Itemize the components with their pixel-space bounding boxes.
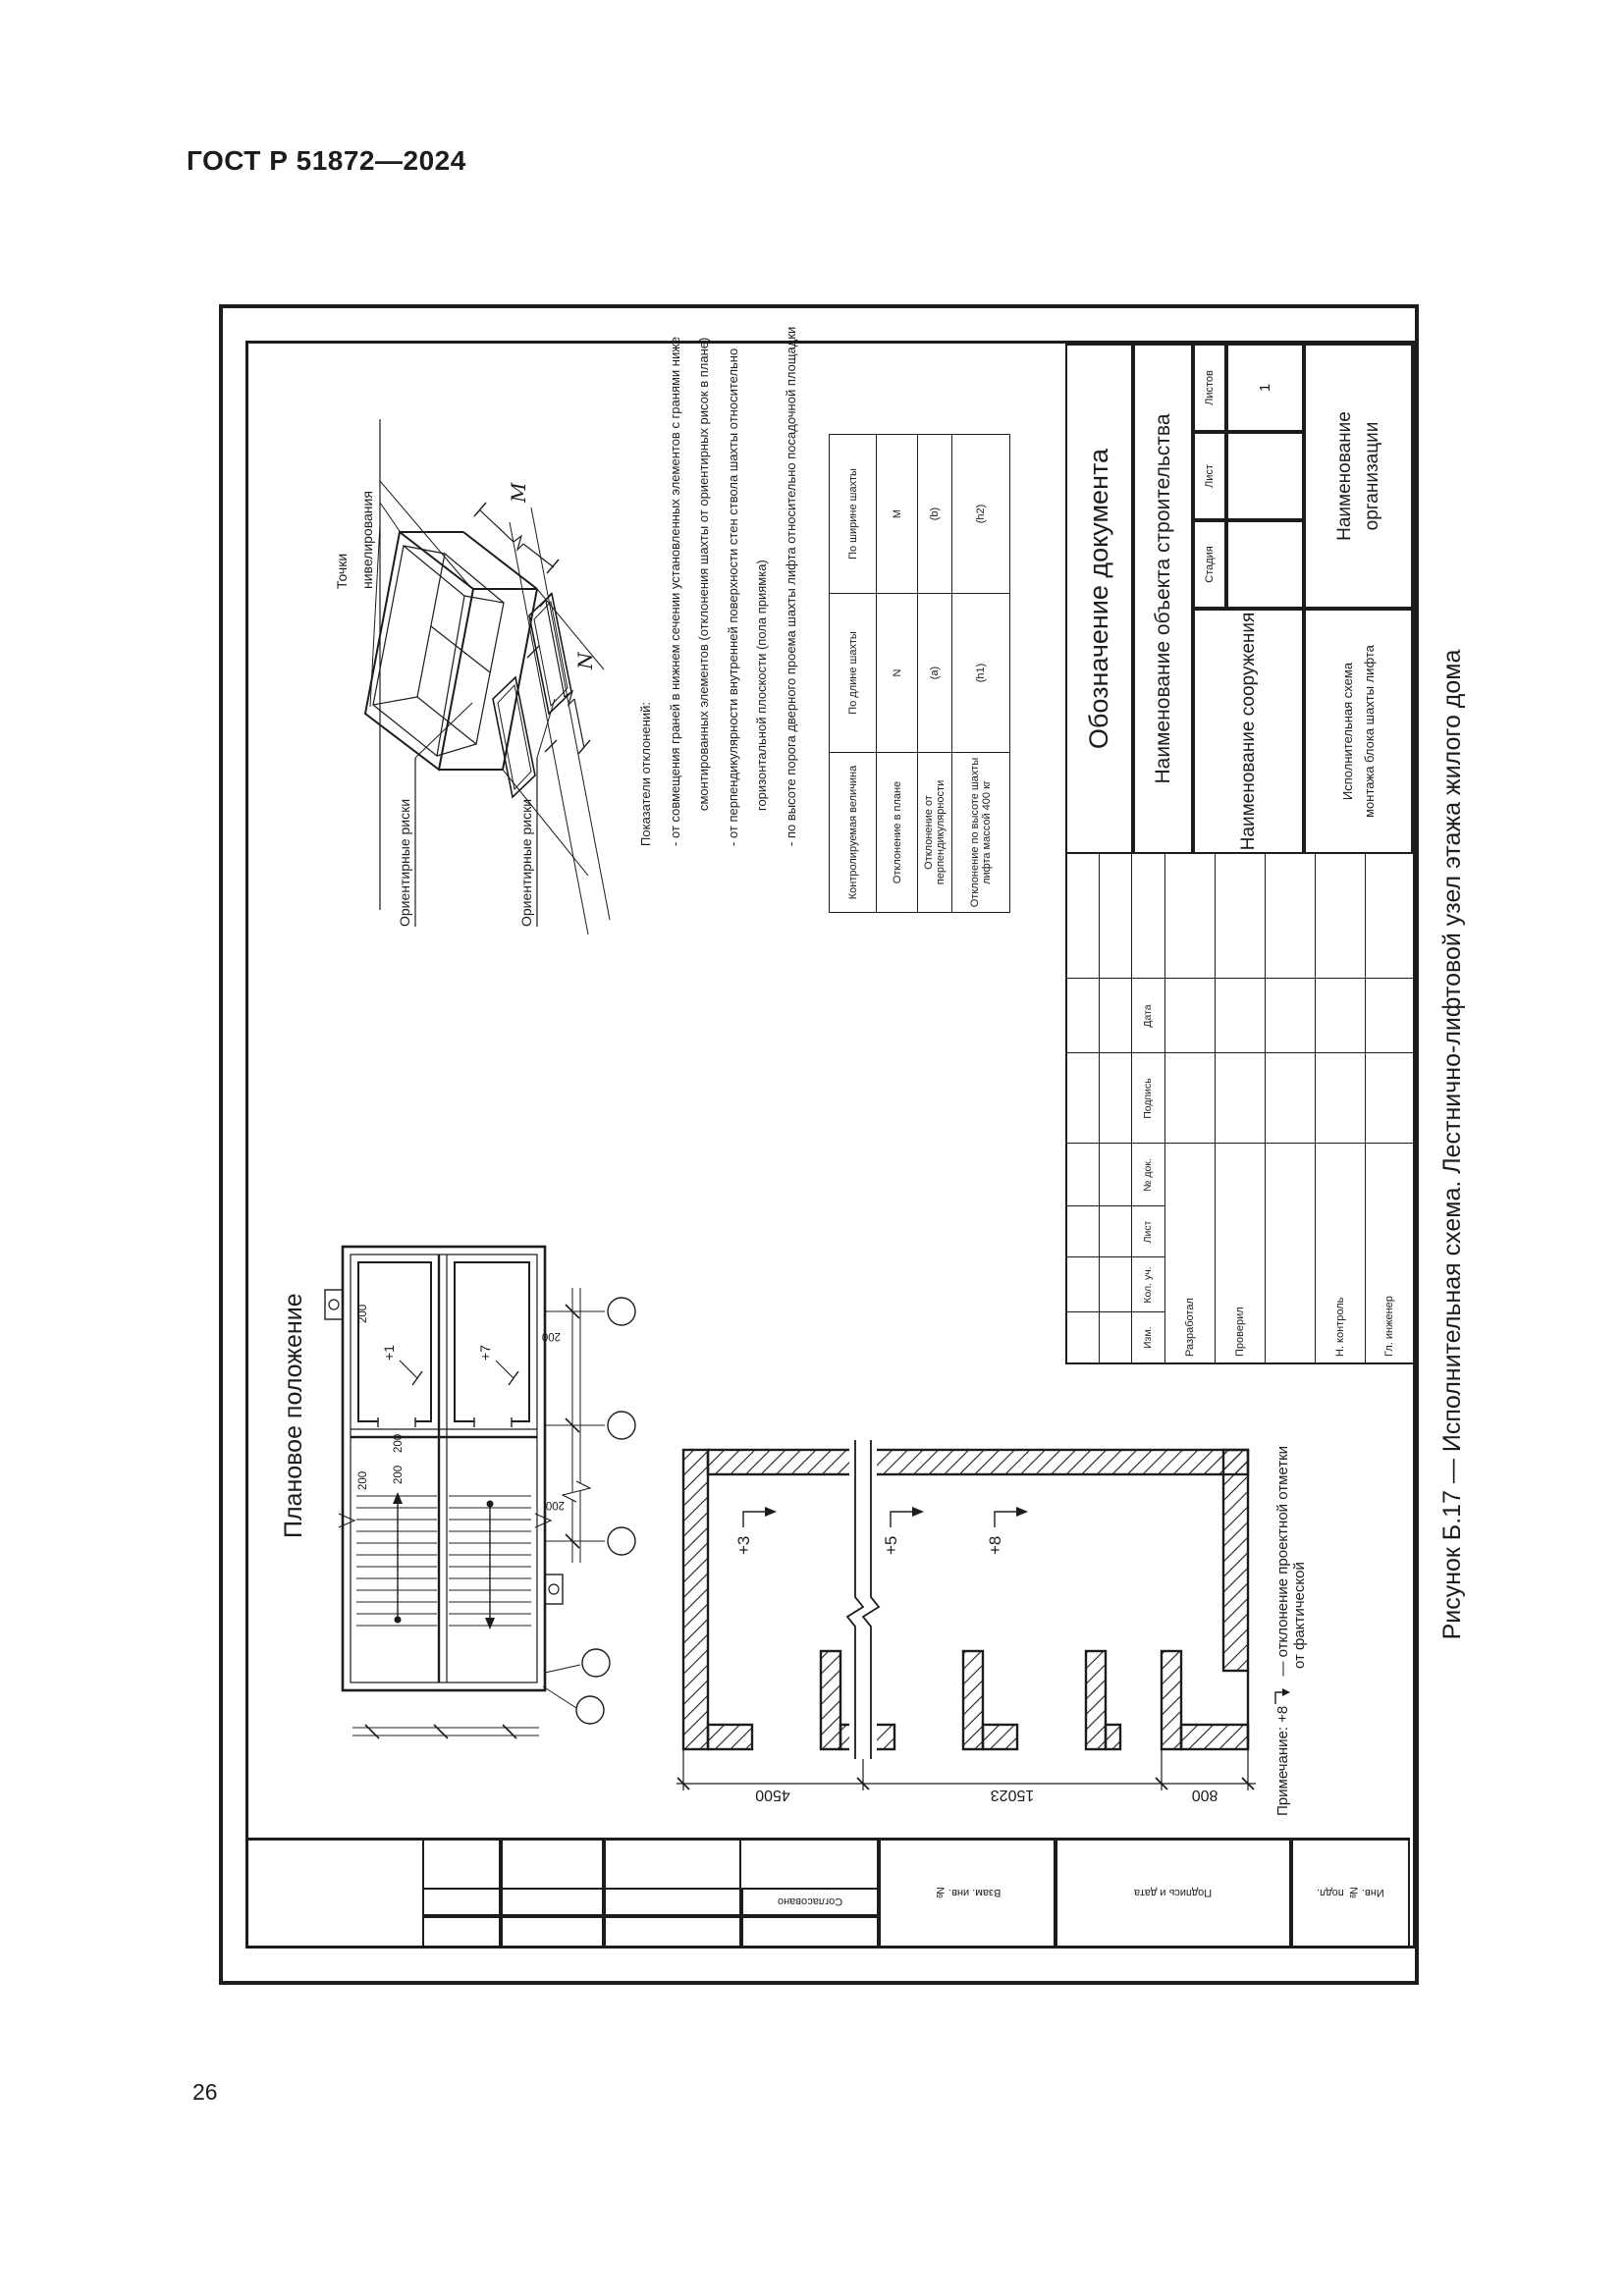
sheets-value: 1 bbox=[1257, 384, 1273, 392]
construction-object-cell: Наименование объекта строительства bbox=[1133, 344, 1193, 854]
section-dim-mid: 15023 bbox=[991, 1787, 1035, 1803]
blank-cell bbox=[1365, 853, 1414, 979]
shaft-bottom-wall bbox=[1223, 1450, 1248, 1671]
elevation-symbol-icon bbox=[1272, 1681, 1291, 1706]
leader-line bbox=[380, 481, 470, 587]
figure-caption: Рисунок Б.17 — Исполнительная схема. Лес… bbox=[1438, 556, 1467, 1734]
dim-tick bbox=[578, 740, 590, 754]
shaft2-deviation: +7 bbox=[477, 1345, 493, 1361]
stage-value-cell bbox=[1226, 520, 1304, 609]
offset-dim: 200 bbox=[542, 1330, 561, 1342]
col-koluch: Кол. уч. bbox=[1131, 1257, 1164, 1312]
dim-break-icon bbox=[563, 1481, 590, 1502]
offset-dim: 200 bbox=[546, 1499, 565, 1511]
axis-bubble bbox=[608, 1527, 635, 1555]
dev-tick bbox=[509, 1371, 518, 1385]
dim-letter-m: M bbox=[507, 482, 530, 504]
blank-cell bbox=[1066, 1257, 1099, 1312]
replace-inv-label: Взам. инв. № bbox=[934, 1888, 1001, 1899]
anchor-circle-icon bbox=[329, 1300, 339, 1309]
stage-header: Стадия bbox=[1193, 520, 1226, 609]
partition-edge bbox=[431, 626, 490, 672]
spec-row-label: Отклонение от перпендикулярности bbox=[918, 753, 952, 913]
scheme-name-cell: Исполнительная схема монтажа блока шахты… bbox=[1304, 609, 1413, 854]
document-page: ГОСТ Р 51872—2024 26 Согласовано Взам. и… bbox=[0, 0, 1624, 2296]
deviation-line: горизонтальной плоскости (пола приямка) bbox=[747, 327, 777, 846]
door-sill bbox=[963, 1651, 983, 1749]
offset-dim: 200 bbox=[357, 1471, 369, 1490]
spec-value: (h2) bbox=[952, 435, 1010, 594]
door-sill bbox=[821, 1651, 840, 1749]
organization-cell: Наименование организации bbox=[1304, 344, 1413, 609]
organization-line2: организации bbox=[1359, 422, 1386, 531]
plan-title: Плановое положение bbox=[280, 1293, 308, 1538]
signature-cell bbox=[1265, 1053, 1315, 1144]
blank-cell bbox=[1215, 853, 1265, 979]
lift-shaft-2 bbox=[455, 1262, 529, 1421]
signature-cell bbox=[1315, 1053, 1365, 1144]
doc-designation: Обозначение документа bbox=[1084, 449, 1114, 749]
stair-treads-upper bbox=[356, 1496, 437, 1626]
signature-cell bbox=[1215, 1053, 1265, 1144]
organization-line1: Наименование bbox=[1331, 411, 1359, 541]
staff-role: Гл. инженер bbox=[1365, 1144, 1414, 1363]
sheet-label: Лист bbox=[1204, 464, 1216, 488]
orientation-mark-icon bbox=[545, 740, 557, 752]
leader-line bbox=[380, 503, 402, 534]
leveling-points-label-2: нивелирования bbox=[359, 491, 375, 589]
sheet-header: Лист bbox=[1193, 432, 1226, 520]
dim-line-m bbox=[480, 510, 514, 542]
dim-tick bbox=[503, 1725, 516, 1738]
title-block-grid: Изм. Кол. уч. Лист № док. Подпись Дата Р… bbox=[1065, 852, 1415, 1364]
shaft-left-wall bbox=[1181, 1725, 1248, 1749]
axis-bubble bbox=[608, 1298, 635, 1325]
scheme-name-line2: монтажа блока шахты лифта bbox=[1359, 645, 1380, 818]
axis-leader bbox=[543, 1686, 576, 1708]
stage-label: Стадия bbox=[1204, 546, 1216, 583]
elev-arrowhead-icon bbox=[1016, 1507, 1028, 1517]
blank-cell bbox=[1066, 1053, 1099, 1144]
orientation-marks-label-1: Ориентирные риски bbox=[397, 799, 412, 927]
shaft-door-opening bbox=[378, 1417, 415, 1427]
col-podpis: Подпись bbox=[1131, 1053, 1164, 1144]
blank-cell bbox=[1164, 853, 1215, 979]
plan-inner-wall bbox=[351, 1255, 537, 1682]
date-cell bbox=[1365, 979, 1414, 1053]
shaft-left-wall bbox=[708, 1725, 752, 1749]
anchor-circle-icon bbox=[549, 1584, 559, 1594]
staff-role bbox=[1265, 1144, 1315, 1363]
spec-table: Контролируемая величина По длине шахты П… bbox=[829, 434, 1010, 913]
axonometric-view: Точки нивелирования Ориентирные риски Ор… bbox=[262, 404, 645, 993]
elev-arrowhead-icon bbox=[765, 1507, 777, 1517]
spec-row-label-line2: лифта массой 400 кг bbox=[981, 756, 993, 909]
note-line-1: Примечание: +8 — отклонение проектной от… bbox=[1272, 1446, 1291, 1816]
ground-slab-1 bbox=[493, 677, 535, 797]
ground-slab-2-inner bbox=[534, 602, 568, 706]
approval-grid-col bbox=[422, 1916, 879, 1949]
inventory-cell: Инв. № подл. bbox=[1291, 1838, 1410, 1949]
dim-tick bbox=[365, 1725, 379, 1738]
anchor-box bbox=[545, 1575, 563, 1604]
spec-row-label-line1: Отклонение по высоте шахты bbox=[969, 756, 981, 909]
dev-leader bbox=[496, 1361, 514, 1378]
door-sill bbox=[1086, 1651, 1106, 1749]
sheets-header: Листов bbox=[1193, 344, 1226, 432]
anchor-box bbox=[325, 1290, 343, 1319]
inventory-label: Инв. № подл. bbox=[1317, 1888, 1384, 1899]
facility-name: Наименование сооружения bbox=[1238, 613, 1260, 851]
elevation-mark-1: +3 bbox=[734, 1536, 753, 1555]
deviation-notes: Показатели отклонений: - от совмещения г… bbox=[631, 327, 805, 846]
shaft1-deviation: +1 bbox=[381, 1345, 397, 1361]
door-sill bbox=[1162, 1651, 1181, 1749]
standard-designation: ГОСТ Р 51872—2024 bbox=[187, 145, 466, 177]
deviation-title: Показатели отклонений: bbox=[631, 327, 661, 846]
deviation-line: - по высоте порога дверного проема шахты… bbox=[777, 327, 806, 846]
spec-row-label: Отклонение по высоте шахты лифта массой … bbox=[952, 753, 1010, 913]
break-mark-icon bbox=[339, 1514, 354, 1527]
elev-arrowhead-icon bbox=[912, 1507, 924, 1517]
blank-cell bbox=[1099, 1312, 1131, 1363]
col-list: Лист bbox=[1131, 1206, 1164, 1257]
staff-role: Н. контроль bbox=[1315, 1144, 1365, 1363]
col-izm: Изм. bbox=[1131, 1312, 1164, 1363]
spec-col-length: По длине шахты bbox=[830, 594, 877, 753]
dim-tick bbox=[547, 560, 559, 573]
leader-line bbox=[415, 703, 472, 758]
dim-letter-n: N bbox=[573, 651, 597, 670]
date-cell bbox=[1215, 979, 1265, 1053]
orientation-marks-label-2: Ориентирные риски bbox=[518, 799, 534, 927]
construction-object: Наименование объекта строительства bbox=[1152, 413, 1175, 783]
dev-leader bbox=[400, 1361, 417, 1378]
elevation-mark-3: +8 bbox=[986, 1536, 1004, 1555]
dev-tick bbox=[412, 1371, 422, 1385]
section-dim-top: 4500 bbox=[755, 1787, 790, 1803]
sign-date-label: Подпись и дата bbox=[1134, 1888, 1212, 1899]
blank-cell bbox=[1066, 1206, 1099, 1257]
dim-break bbox=[514, 536, 523, 550]
blank-cell bbox=[1066, 979, 1099, 1053]
offset-dim: 200 bbox=[357, 1305, 369, 1323]
wall-bottom bbox=[503, 589, 537, 770]
spec-col-width: По ширине шахты bbox=[830, 435, 877, 594]
axis-bubble bbox=[582, 1649, 610, 1677]
sheets-label: Листов bbox=[1204, 370, 1216, 405]
elevation-mark-2: +5 bbox=[882, 1536, 900, 1555]
blank-cell bbox=[1099, 1206, 1131, 1257]
plan-outer-wall bbox=[343, 1247, 545, 1690]
figure-area: Согласовано Взам. инв. № Подпись и дата … bbox=[219, 304, 1505, 1985]
dim-tick bbox=[434, 1725, 448, 1738]
blank-cell bbox=[1099, 1257, 1131, 1312]
leader-line bbox=[537, 699, 555, 758]
facility-cell: Наименование сооружения bbox=[1193, 609, 1304, 854]
projection-line bbox=[503, 770, 588, 876]
wall-bottom bbox=[463, 532, 537, 589]
offset-dim: 200 bbox=[393, 1434, 405, 1453]
axis-baseline bbox=[531, 507, 610, 920]
signature-cell bbox=[1164, 1053, 1215, 1144]
date-cell bbox=[1265, 979, 1315, 1053]
stair-arrowhead-icon bbox=[485, 1618, 495, 1629]
spec-col-param: Контролируемая величина bbox=[830, 753, 877, 913]
shaft-right-wall bbox=[708, 1450, 1248, 1474]
title-block: Изм. Кол. уч. Лист № док. Подпись Дата Р… bbox=[1065, 344, 1413, 1364]
shaft-left-wall bbox=[983, 1725, 1017, 1749]
spec-value: (h1) bbox=[952, 594, 1010, 753]
spec-value: (b) bbox=[918, 435, 952, 594]
sheets-value-cell: 1 bbox=[1226, 344, 1304, 432]
staff-role: Разработал bbox=[1164, 1144, 1215, 1363]
col-data: Дата bbox=[1131, 979, 1164, 1053]
blank-cell bbox=[1099, 1144, 1131, 1206]
plan-view: +1 +7 200 200 200 200 200 200 bbox=[313, 1200, 651, 1749]
staff-role: Проверил bbox=[1215, 1144, 1265, 1363]
shaft-top-wall bbox=[683, 1450, 708, 1749]
deviation-line: - от перпендикулярности внутренней повер… bbox=[719, 327, 748, 846]
page-number: 26 bbox=[192, 2079, 218, 2106]
section-dim-bottom: 800 bbox=[1192, 1787, 1218, 1803]
blank-cell bbox=[1265, 853, 1315, 979]
blank-cell bbox=[1099, 853, 1131, 979]
date-cell bbox=[1315, 979, 1365, 1053]
spec-value: N bbox=[877, 594, 918, 753]
leveling-points-label-1: Точки bbox=[334, 554, 350, 589]
doc-designation-cell: Обозначение документа bbox=[1065, 344, 1133, 854]
date-cell bbox=[1164, 979, 1215, 1053]
blank-cell bbox=[1066, 1312, 1099, 1363]
sign-date-cell: Подпись и дата bbox=[1056, 1838, 1291, 1949]
shaft-door-opening bbox=[474, 1417, 512, 1427]
replace-inv-cell: Взам. инв. № bbox=[879, 1838, 1056, 1949]
ground-slab-1-inner bbox=[498, 685, 531, 789]
blank-cell bbox=[1066, 853, 1099, 979]
section-note: Примечание: +8 — отклонение проектной от… bbox=[1272, 1446, 1308, 1816]
col-dok: № док. bbox=[1131, 1144, 1164, 1206]
scheme-name-line1: Исполнительная схема bbox=[1337, 663, 1359, 800]
shaft-rim-outer bbox=[365, 532, 473, 770]
shaft-left-wall bbox=[1106, 1725, 1120, 1749]
blank-cell bbox=[1315, 853, 1365, 979]
approval-grid-col bbox=[422, 1888, 879, 1916]
note-label: Примечание: +8 bbox=[1274, 1706, 1291, 1816]
stair-arrowhead-icon bbox=[393, 1492, 403, 1504]
blank-cell bbox=[1099, 979, 1131, 1053]
blank-cell bbox=[1099, 1053, 1131, 1144]
note-text-2: от фактической bbox=[1291, 1446, 1308, 1669]
axis-bubble bbox=[608, 1412, 635, 1439]
blank-cell bbox=[1066, 1144, 1099, 1206]
dim-line-n bbox=[546, 601, 565, 697]
lift-shaft-1 bbox=[358, 1262, 431, 1421]
spec-value: (a) bbox=[918, 594, 952, 753]
offset-dim: 200 bbox=[393, 1466, 405, 1484]
axis-leader bbox=[545, 1665, 580, 1673]
sheet-value-cell bbox=[1226, 432, 1304, 520]
axis-bubble bbox=[576, 1696, 604, 1724]
section-view: +3 +5 +8 4500 15023 800 bbox=[669, 1396, 1270, 1818]
deviation-line: смонтированных элементов (отклонения шах… bbox=[689, 327, 719, 846]
deviation-line: - от совмещения граней в нижнем сечении … bbox=[661, 327, 690, 846]
drawing-sheet-landscape: Согласовано Взам. инв. № Подпись и дата … bbox=[219, 304, 1505, 1985]
spec-value: M bbox=[877, 435, 918, 594]
margin-strip: Согласовано Взам. инв. № Подпись и дата … bbox=[245, 1838, 1410, 1949]
blank-cell bbox=[1131, 853, 1164, 979]
spec-row-label: Отклонение в плане bbox=[877, 753, 918, 913]
note-text-1: — отклонение проектной отметки bbox=[1274, 1446, 1291, 1677]
ground-slab-2 bbox=[529, 594, 571, 714]
signature-cell bbox=[1365, 1053, 1414, 1144]
